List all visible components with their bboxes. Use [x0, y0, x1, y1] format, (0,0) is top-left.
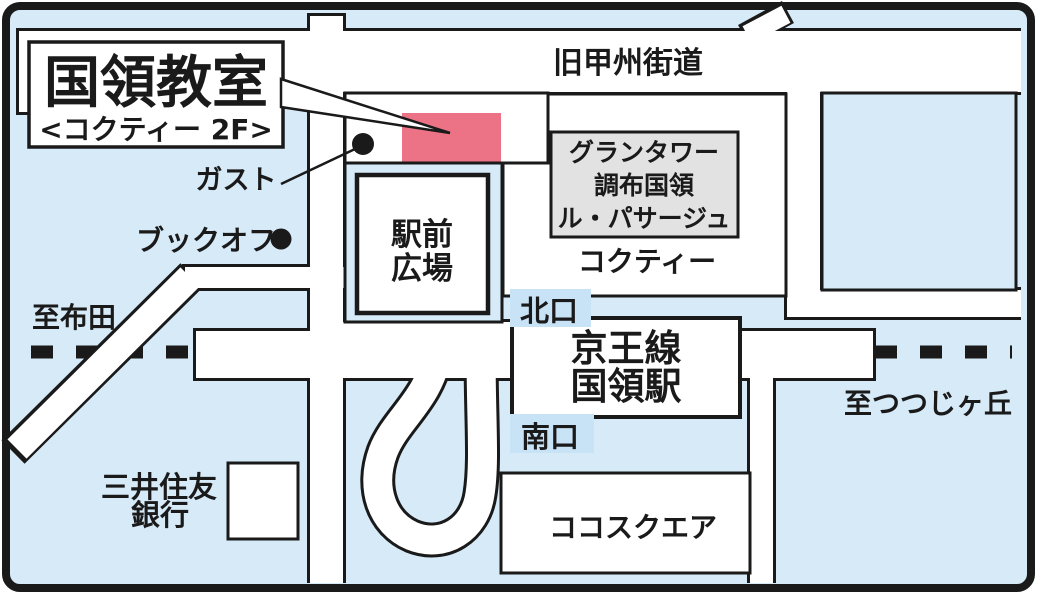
label-grantower-line1: グランタワー — [569, 138, 719, 167]
label-to-tsutsujigaoka: 至つつじヶ丘 — [844, 387, 1012, 420]
label-north-exit: 北口 — [520, 294, 578, 328]
label-grantower-line3: ル・パサージュ — [558, 204, 731, 233]
label-station-plaza-line2: 広場 — [391, 251, 453, 287]
access-map: 国領教室 <コクティー 2F> 旧甲州街道 ガスト ブックオフ 至布田 駅前 広… — [0, 0, 1037, 594]
label-cocty: コクティー — [578, 245, 716, 278]
label-station-line: 京王線 — [571, 327, 682, 370]
label-station-plaza-line1: 駅前 — [391, 217, 453, 253]
label-gusto: ガスト — [196, 165, 277, 196]
bank-building-box — [228, 463, 298, 539]
label-station-name: 国領駅 — [571, 365, 682, 408]
map-title: 国領教室 — [44, 51, 268, 116]
road-label-old-koshu-kaido: 旧甲州街道 — [553, 46, 703, 81]
label-coco-square: ココスクエア — [549, 511, 717, 544]
gusto-dot-icon — [352, 133, 374, 155]
label-bank-line2: 銀行 — [131, 498, 189, 532]
classroom-location-marker — [402, 113, 501, 163]
label-grantower-line2: 調布国領 — [594, 171, 695, 200]
label-to-fuda: 至布田 — [32, 301, 116, 334]
northeast-city-block — [822, 93, 1016, 290]
label-bookoff: ブックオフ — [136, 224, 276, 257]
map-subtitle: <コクティー 2F> — [39, 113, 273, 146]
label-south-exit: 南口 — [521, 420, 579, 454]
